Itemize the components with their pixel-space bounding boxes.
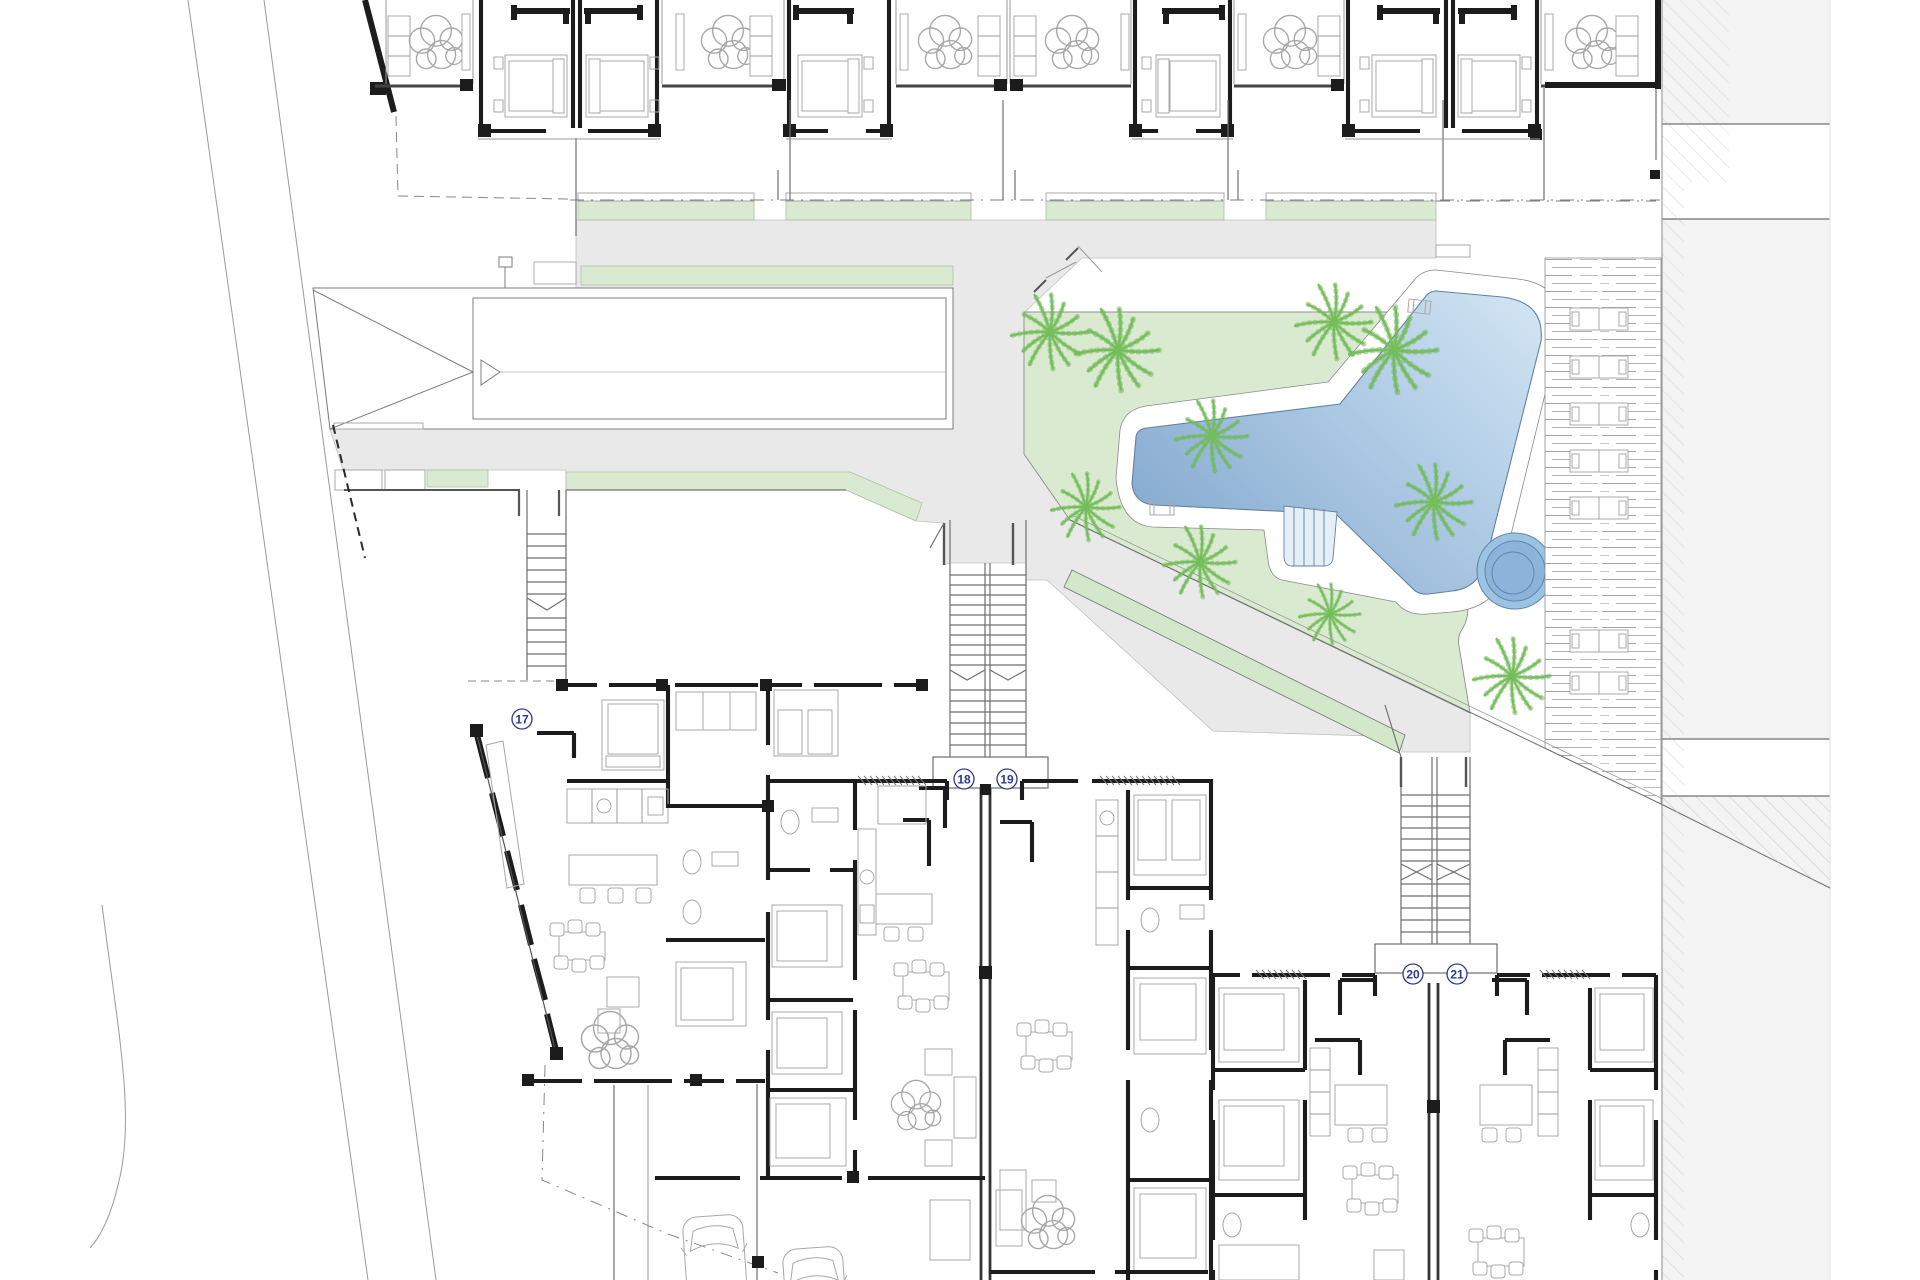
svg-text:20: 20 bbox=[1406, 968, 1420, 982]
svg-text:17: 17 bbox=[515, 713, 529, 727]
svg-text:19: 19 bbox=[1000, 773, 1014, 787]
svg-text:18: 18 bbox=[957, 773, 971, 787]
svg-text:21: 21 bbox=[1450, 968, 1464, 982]
